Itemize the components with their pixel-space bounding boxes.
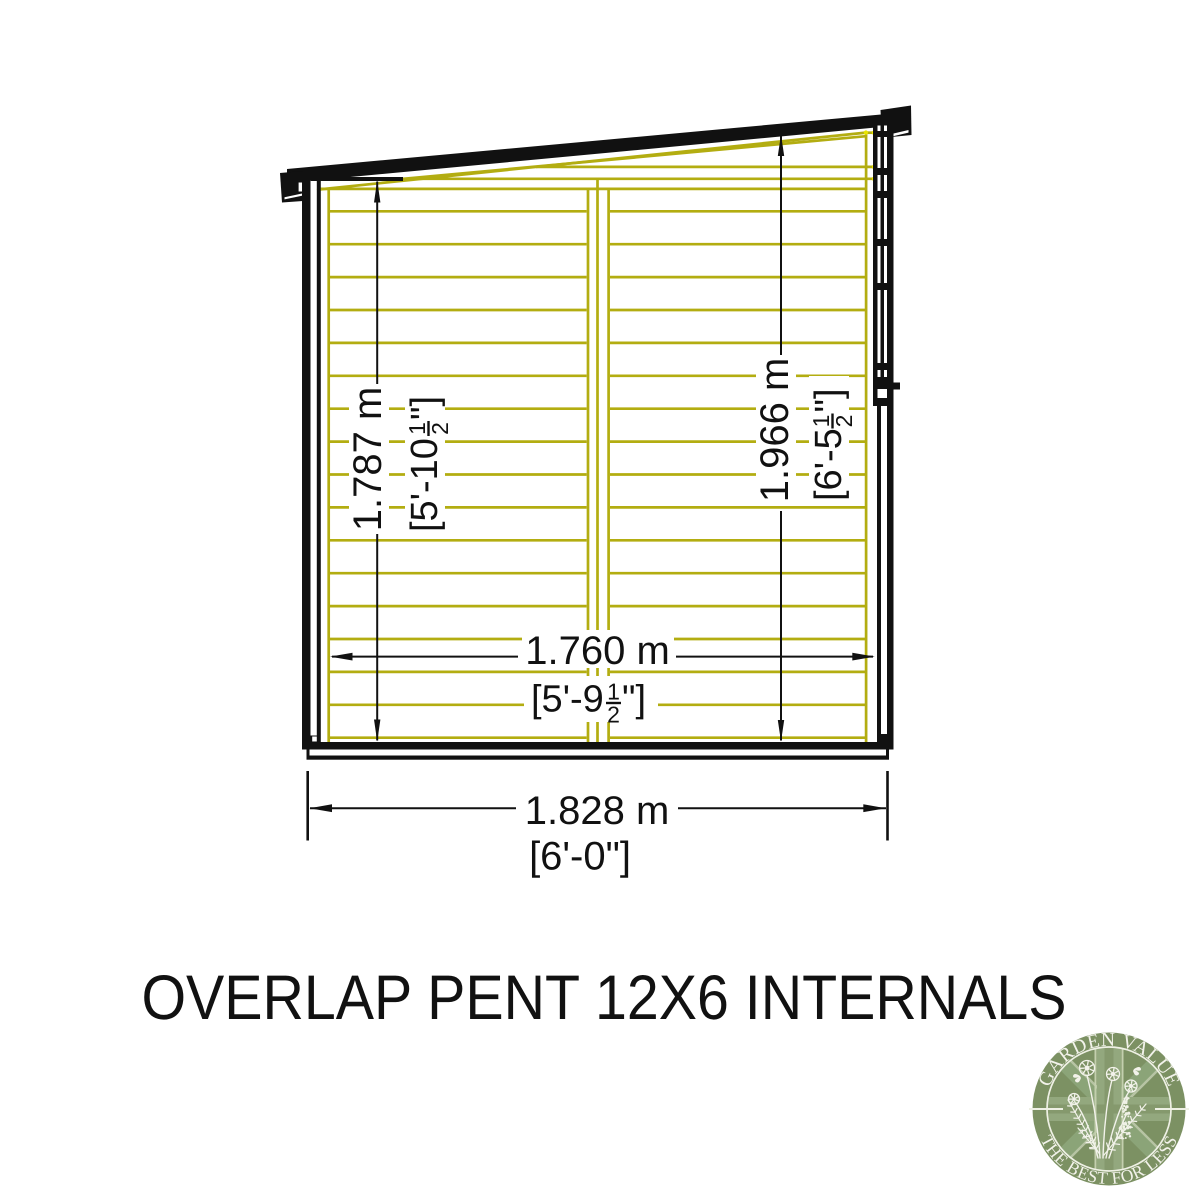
svg-text:2: 2 (427, 422, 453, 435)
svg-text:[6'-5: [6'-5 (808, 428, 850, 501)
svg-text:1.787 m: 1.787 m (346, 387, 390, 532)
svg-text:2: 2 (607, 702, 620, 728)
svg-text:"]: "] (404, 396, 446, 420)
svg-text:1.966 m: 1.966 m (753, 358, 797, 503)
svg-text:2: 2 (831, 415, 857, 428)
svg-text:1.828 m: 1.828 m (525, 789, 670, 833)
svg-text:[5'-9: [5'-9 (531, 679, 604, 721)
svg-text:[5'-10: [5'-10 (404, 438, 446, 532)
svg-text:[6'-0"]: [6'-0"] (529, 835, 631, 879)
svg-text:"]: "] (808, 388, 850, 412)
svg-text:"]: "] (622, 679, 646, 721)
svg-text:1.760 m: 1.760 m (525, 629, 670, 673)
svg-text:OVERLAP PENT 12X6 INTERNALS: OVERLAP PENT 12X6 INTERNALS (141, 963, 1066, 1033)
